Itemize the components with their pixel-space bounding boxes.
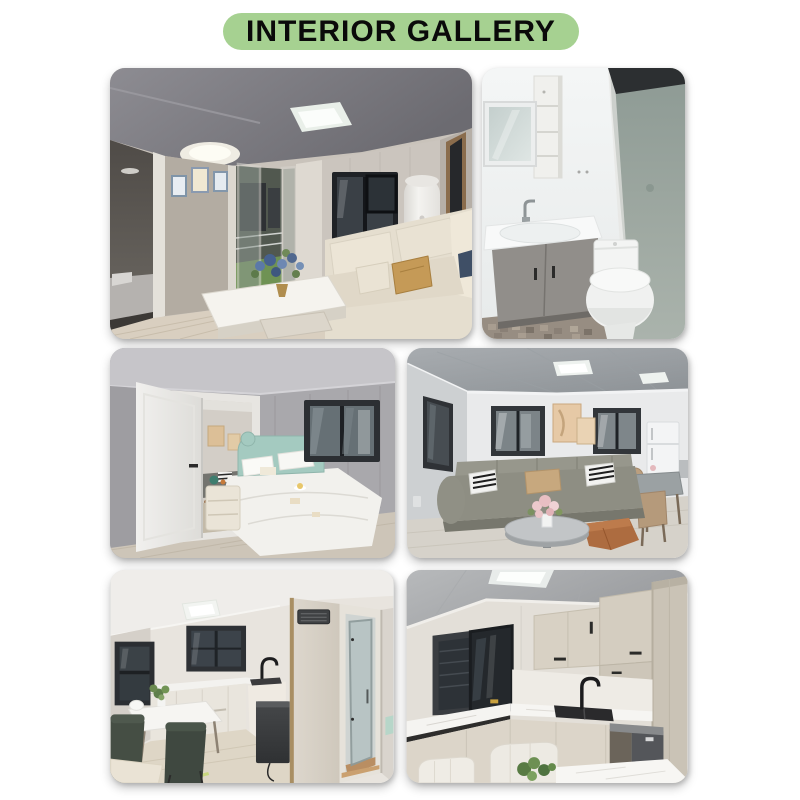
bathroom-photo: [482, 68, 685, 339]
bedroom-photo: [110, 348, 395, 558]
kitchen-image: [406, 570, 688, 783]
living-room-photo: [110, 68, 472, 339]
dining-kitchen-image: [110, 570, 394, 783]
interior-gallery-page: INTERIOR GALLERY: [0, 0, 800, 800]
living-dining-image: [407, 348, 688, 558]
bedroom-image: [110, 348, 395, 558]
bathroom-image: [482, 68, 685, 339]
living-dining-photo: [407, 348, 688, 558]
gallery-title: INTERIOR GALLERY: [246, 15, 556, 49]
kitchen-photo: [406, 570, 688, 783]
dining-kitchen-photo: [110, 570, 394, 783]
living-room-image: [110, 68, 472, 339]
gallery-title-banner: INTERIOR GALLERY: [223, 13, 579, 50]
